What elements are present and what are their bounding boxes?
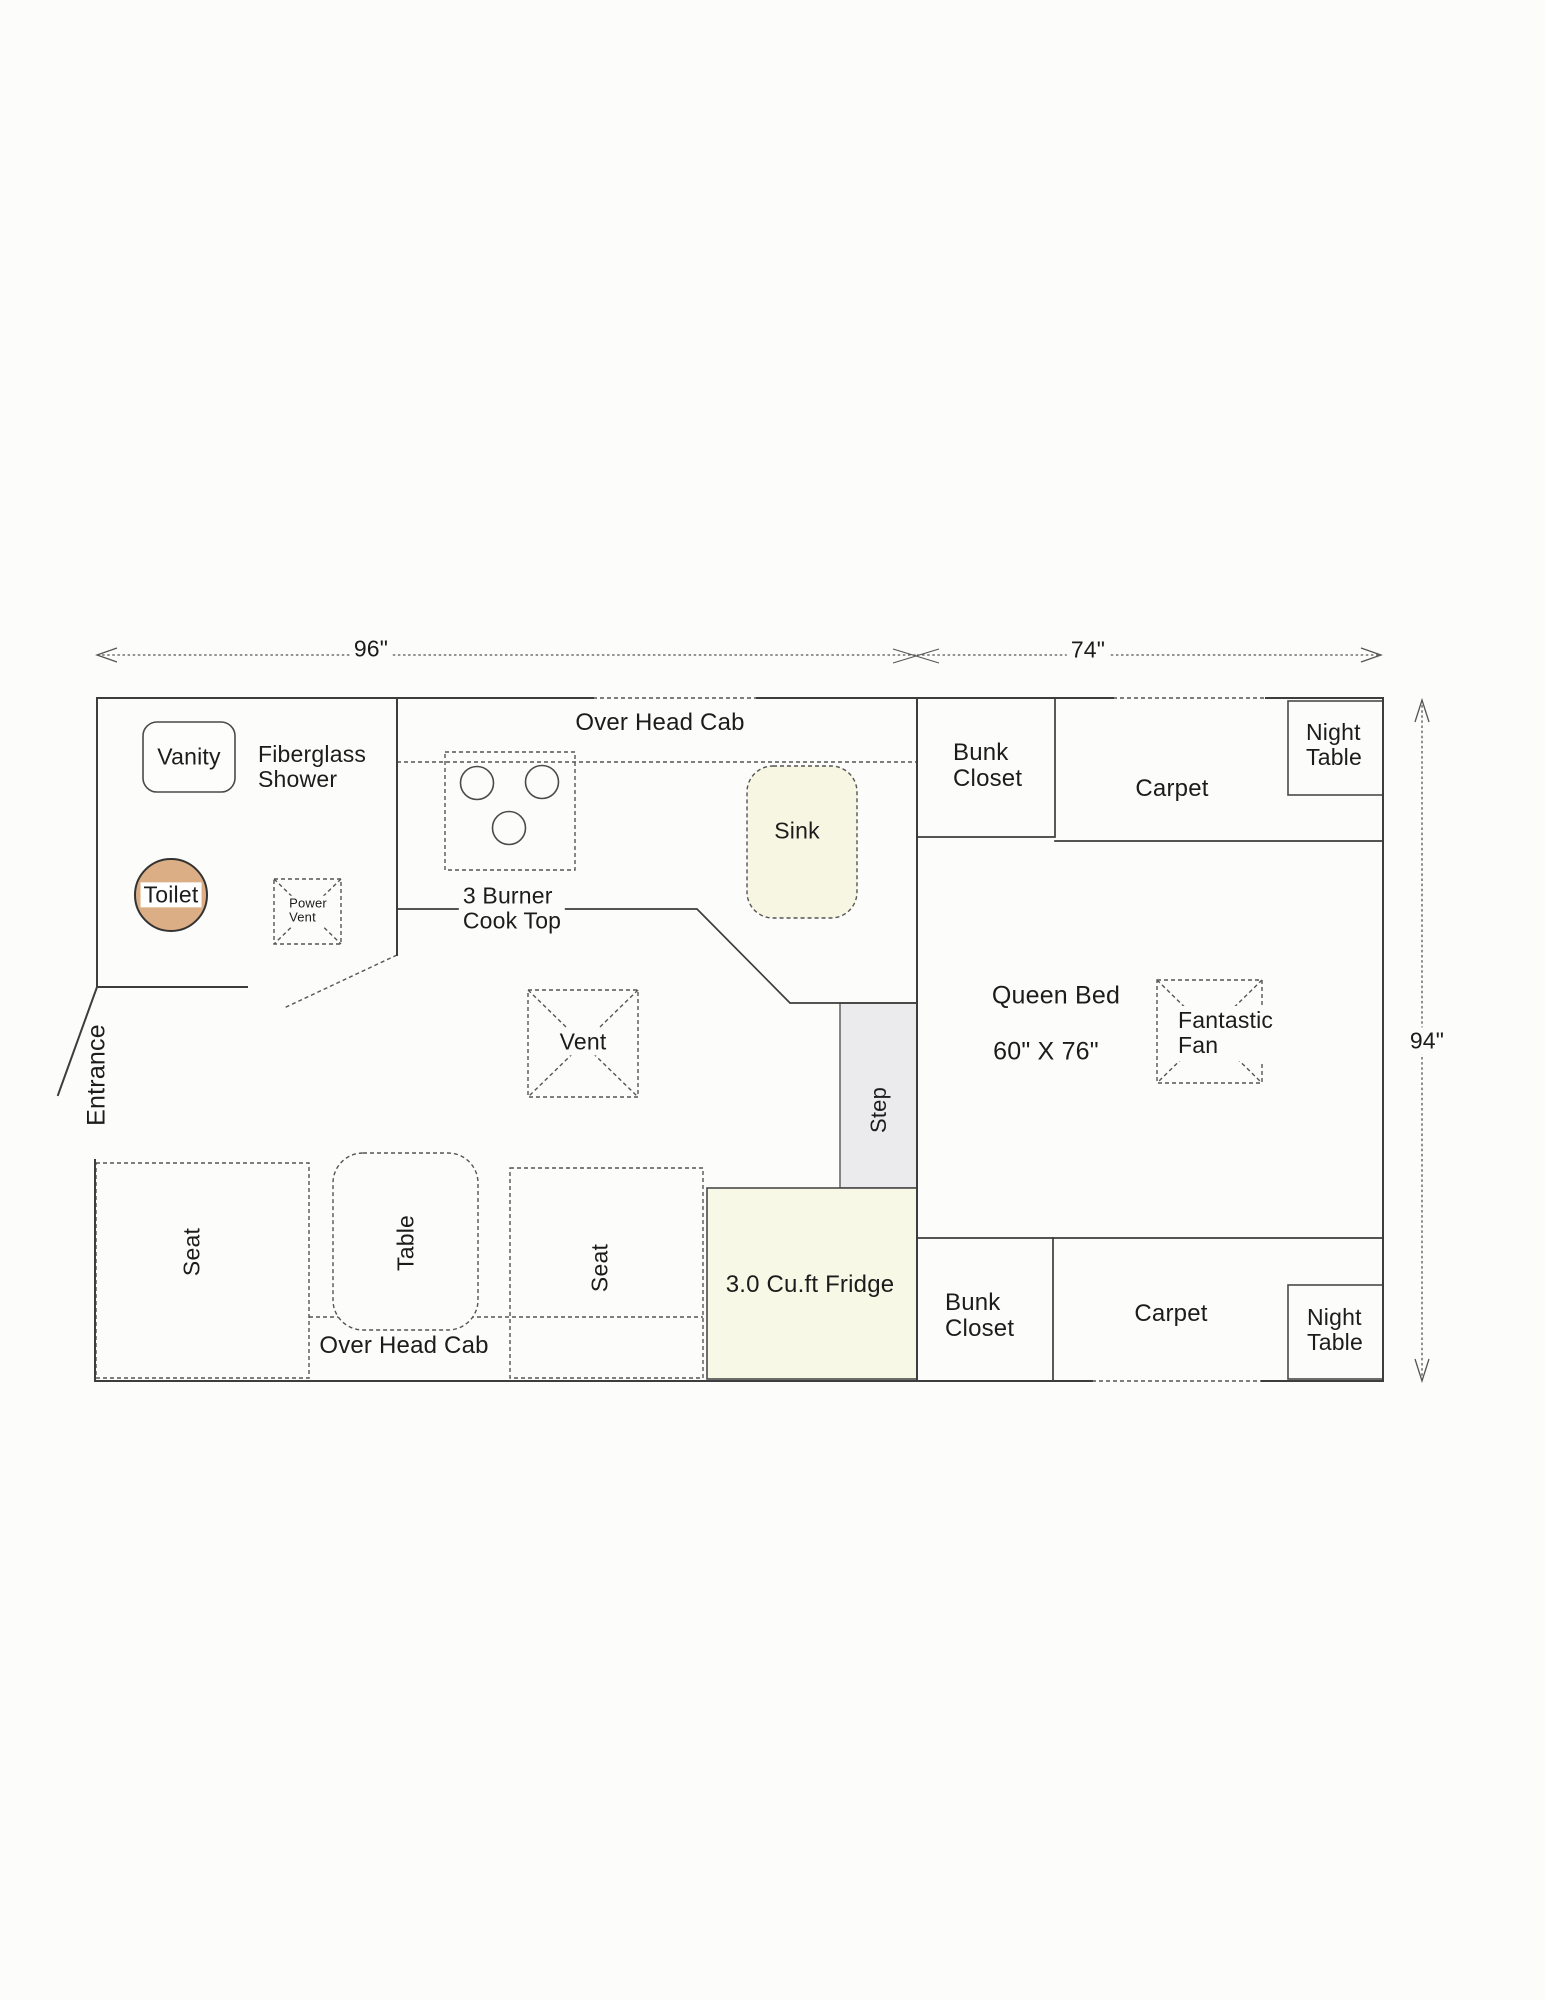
- seat-right-label: Seat: [587, 1244, 612, 1292]
- dimension-74: 74": [1067, 636, 1109, 663]
- vanity-label: Vanity: [157, 744, 220, 769]
- cooktop-burner-3: [493, 812, 526, 845]
- queen-bed-label: Queen Bed: [992, 982, 1120, 1010]
- night-table-bottom-label: Night Table: [1307, 1305, 1363, 1356]
- cooktop-burner-1: [461, 767, 494, 800]
- dimension-96: 96": [350, 635, 392, 662]
- step-label: Step: [867, 1087, 891, 1133]
- entrance-label: Entrance: [83, 1024, 111, 1126]
- floorplan-drawing: [0, 0, 1545, 2000]
- fridge-label: 3.0 Cu.ft Fridge: [726, 1272, 895, 1298]
- fantastic-fan-label: Fantastic Fan: [1174, 1006, 1277, 1061]
- overhead-cab-top-label: Over Head Cab: [575, 710, 744, 736]
- bunk-closet-bottom-label: Bunk Closet: [945, 1290, 1014, 1343]
- fiberglass-shower-label: Fiberglass Shower: [258, 742, 366, 793]
- night-table-top-label: Night Table: [1306, 720, 1362, 771]
- overhead-cab-bottom-label: Over Head Cab: [319, 1333, 488, 1359]
- floorplan-canvas: 96" 74" 94" Vanity Fiberglass Shower Toi…: [0, 0, 1545, 2000]
- dim-junction-x-icon: [893, 649, 939, 663]
- sink-label: Sink: [774, 818, 820, 843]
- queen-bed-size-label: 60" X 76": [993, 1038, 1099, 1066]
- carpet-bottom-label: Carpet: [1134, 1301, 1207, 1327]
- carpet-top-label: Carpet: [1135, 776, 1208, 802]
- table-label: Table: [393, 1215, 418, 1271]
- cooktop-burner-2: [526, 766, 559, 799]
- entrance-door-swing: [284, 955, 397, 1008]
- vent-label: Vent: [556, 1028, 611, 1055]
- toilet-label: Toilet: [141, 882, 202, 907]
- bunk-closet-top-label: Bunk Closet: [953, 740, 1022, 793]
- cooktop-label: 3 Burner Cook Top: [459, 883, 565, 936]
- seat-left-label: Seat: [179, 1228, 204, 1276]
- dimension-94: 94": [1406, 1027, 1448, 1054]
- power-vent-label: Power Vent: [285, 896, 331, 927]
